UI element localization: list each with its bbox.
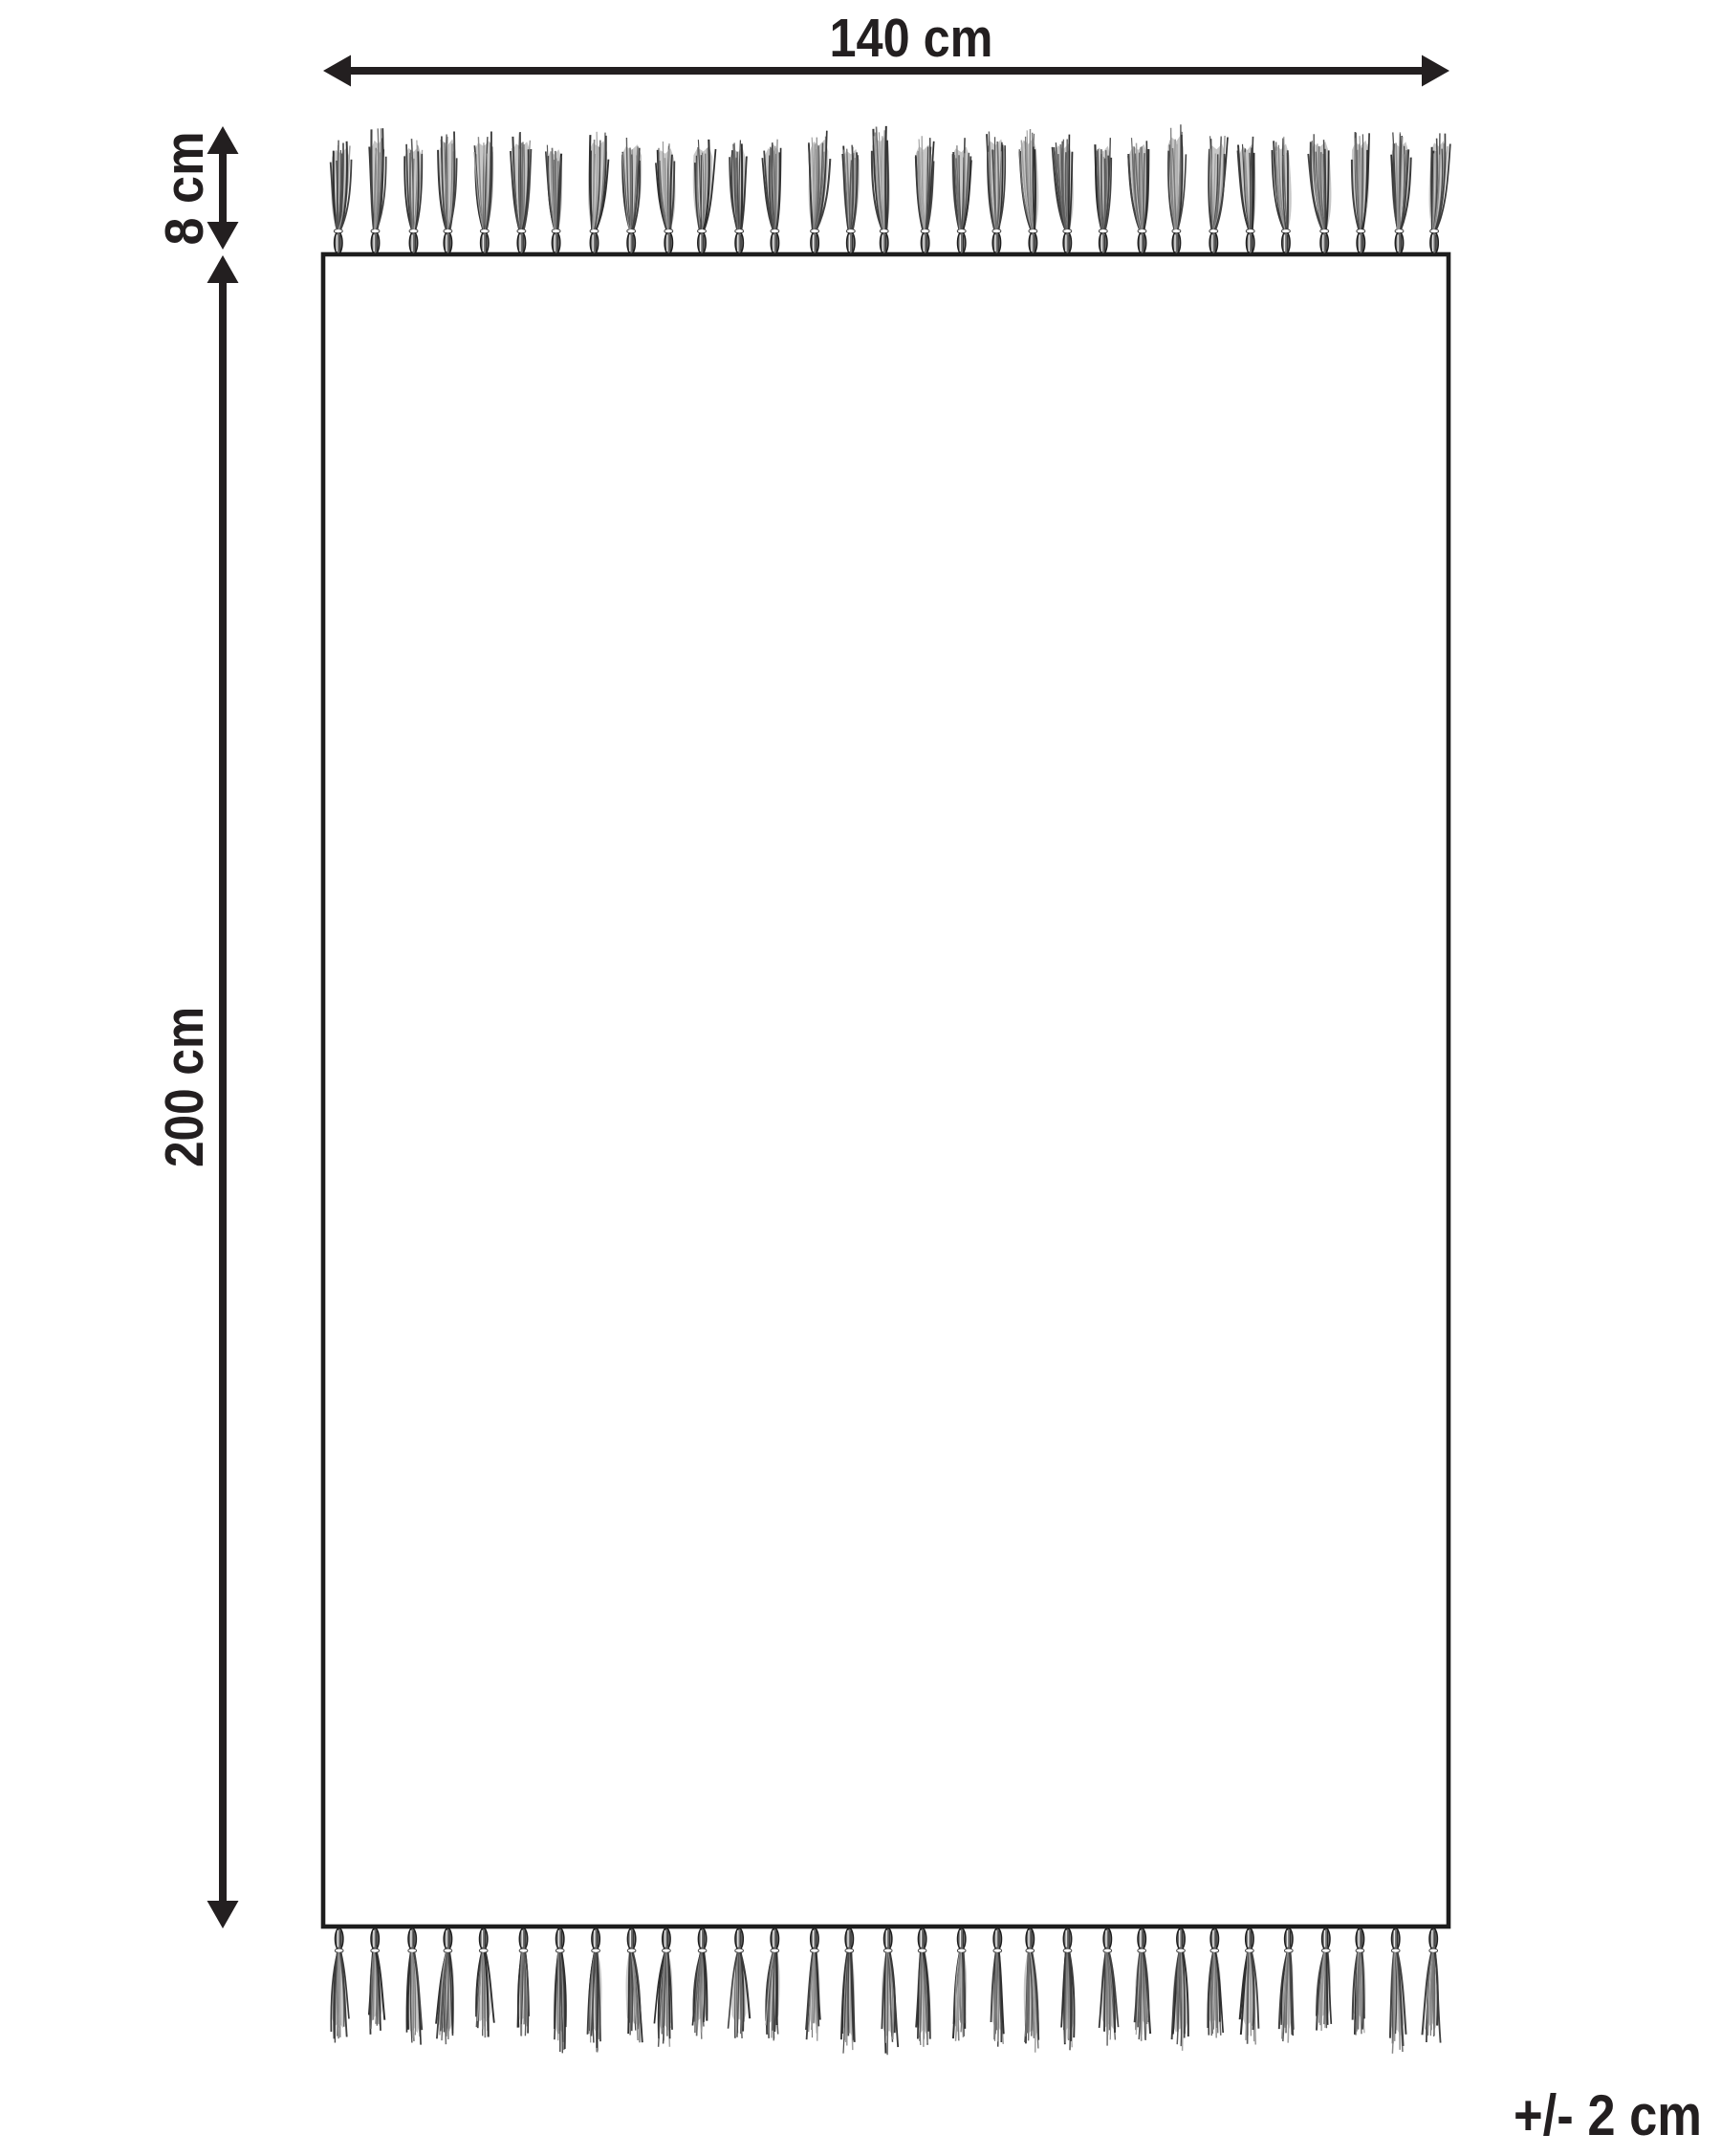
svg-text:+/- 2 cm: +/- 2 cm bbox=[1514, 2083, 1702, 2147]
svg-text:8 cm: 8 cm bbox=[154, 132, 215, 246]
svg-text:140 cm: 140 cm bbox=[830, 8, 993, 69]
svg-text:200 cm: 200 cm bbox=[154, 1007, 215, 1167]
